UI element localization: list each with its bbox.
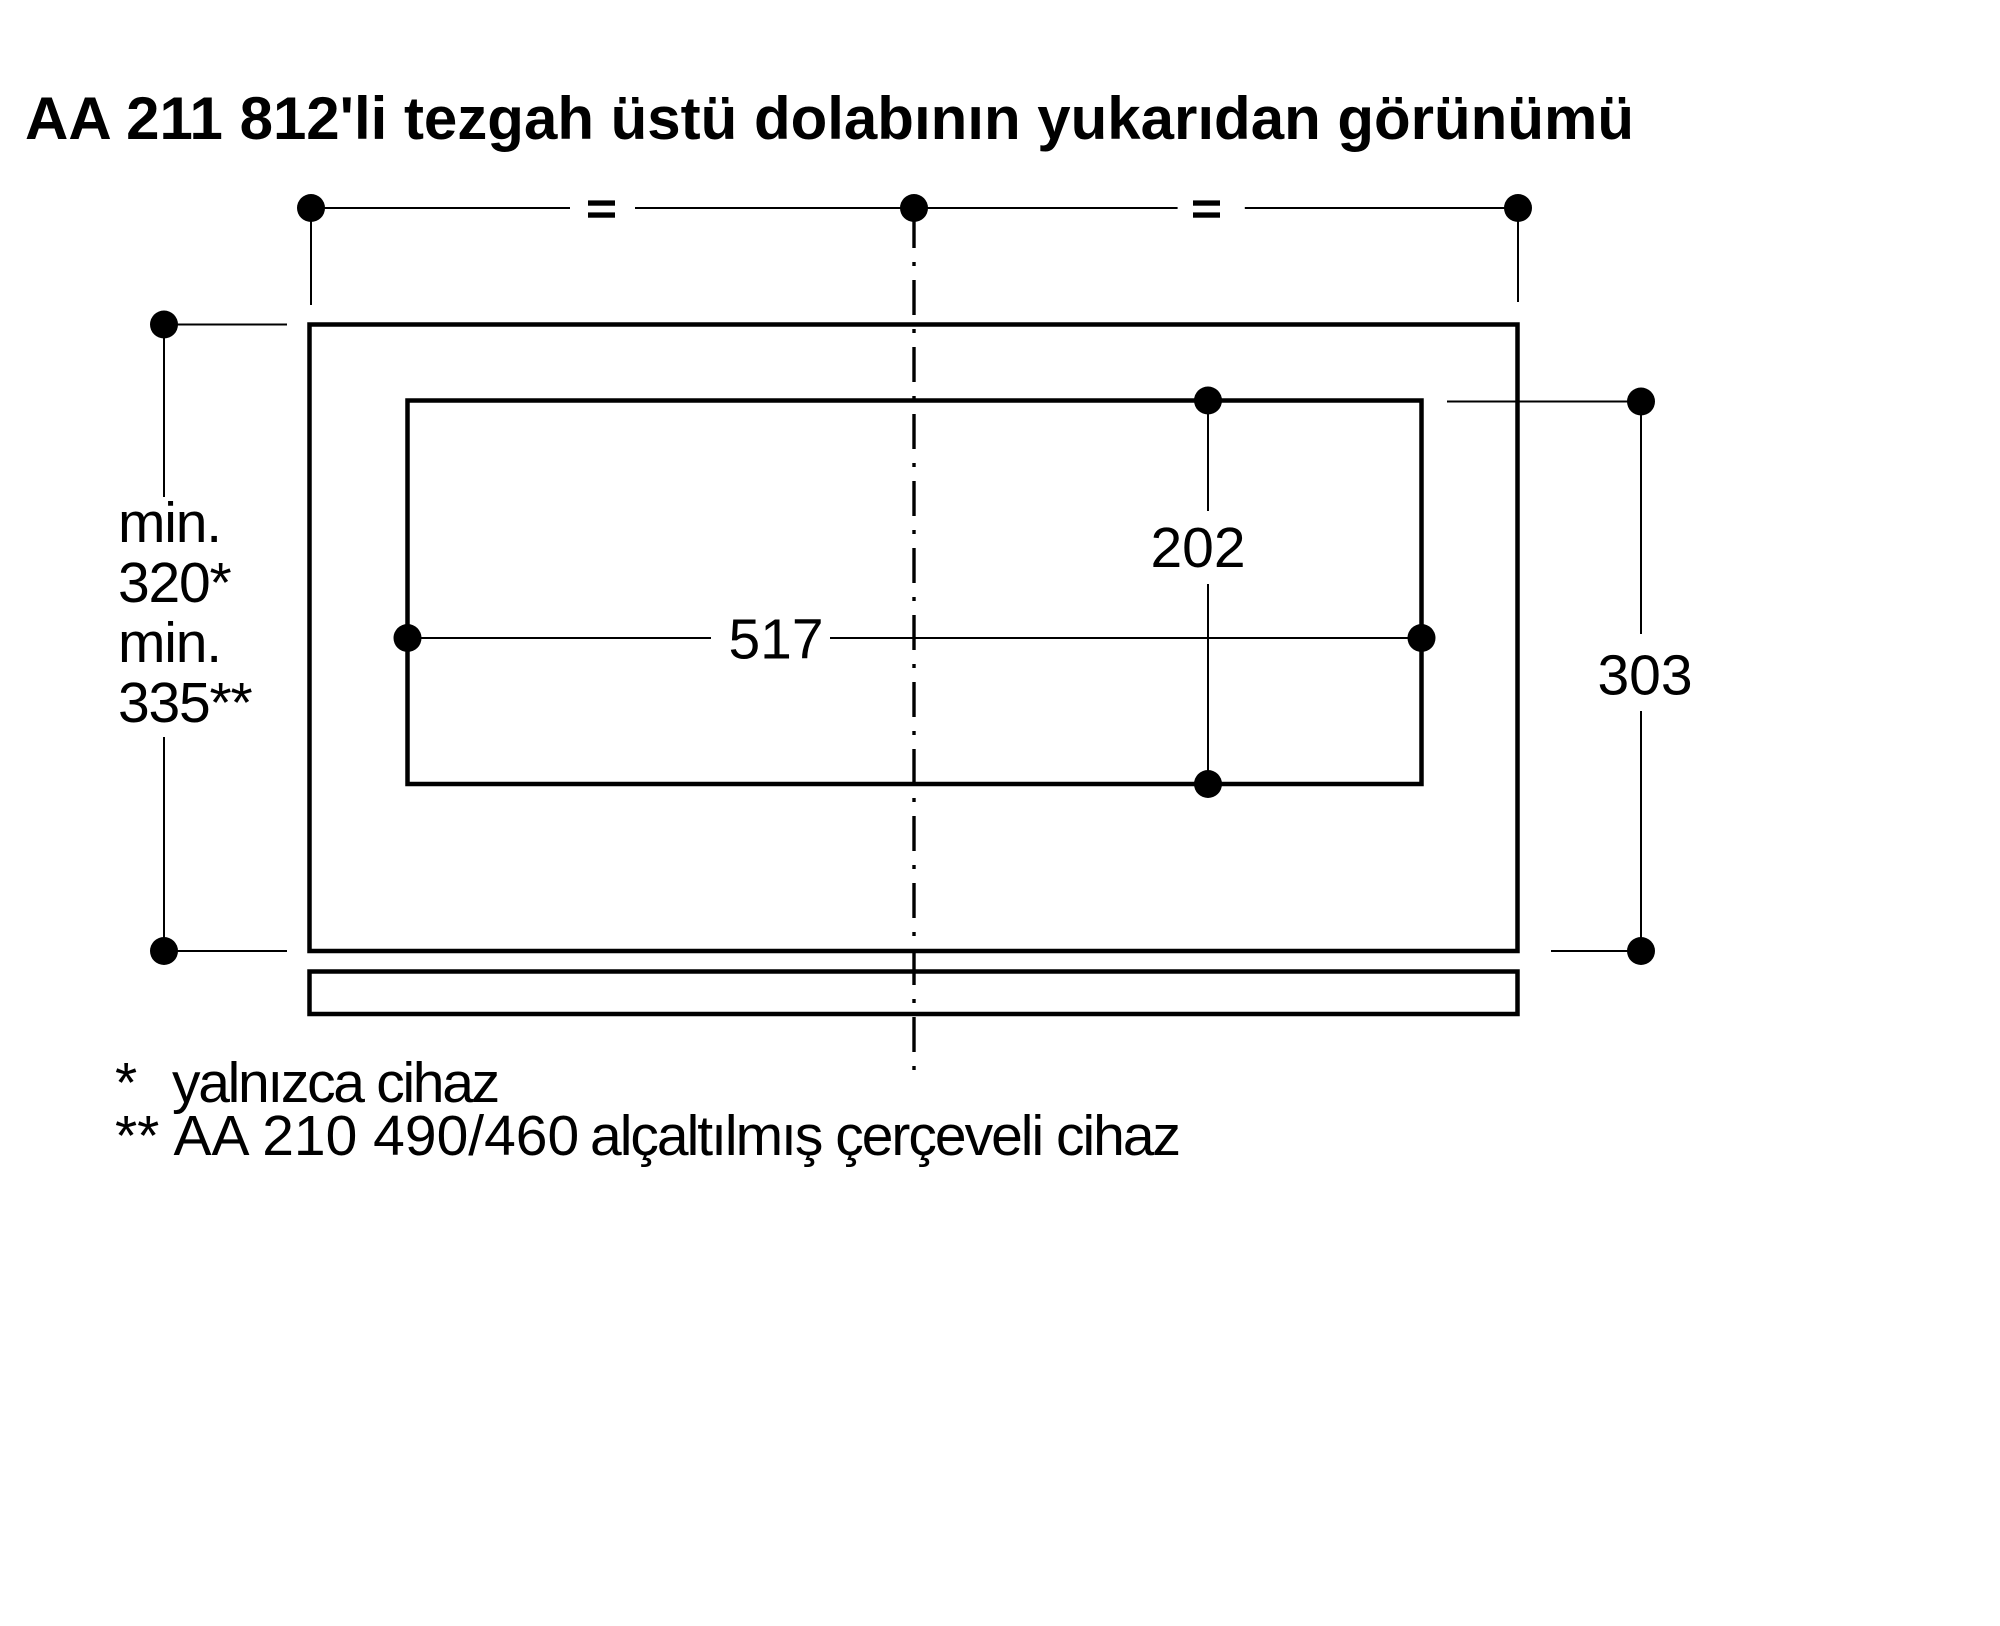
svg-text:min.: min.	[118, 611, 221, 675]
svg-text:335**: 335**	[118, 671, 252, 735]
svg-text:**: **	[115, 1104, 159, 1168]
svg-text:AA 211 812'li tezgah üstü dola: AA 211 812'li tezgah üstü dolabının yuka…	[25, 85, 1634, 152]
svg-text:320*: 320*	[118, 551, 232, 615]
svg-text:202: 202	[1150, 516, 1245, 580]
svg-text:303: 303	[1597, 644, 1692, 708]
svg-text:alçaltılmış çerçeveli cihaz: alçaltılmış çerçeveli cihaz	[590, 1104, 1179, 1168]
svg-text:AA 210 490/460: AA 210 490/460	[174, 1104, 580, 1168]
svg-text:min.: min.	[118, 491, 221, 555]
svg-text:517: 517	[728, 608, 823, 672]
